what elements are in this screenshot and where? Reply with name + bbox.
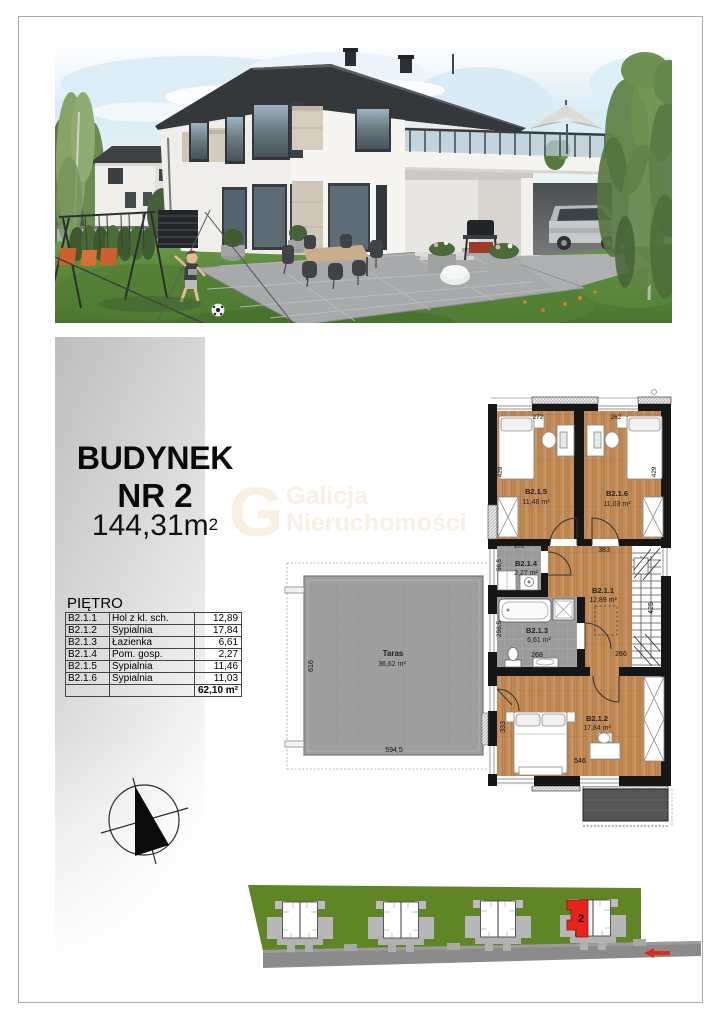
- svg-text:B2.1.1: B2.1.1: [592, 586, 614, 595]
- svg-text:11,46 m²: 11,46 m²: [522, 499, 550, 506]
- svg-text:B2.1.6: B2.1.6: [606, 489, 628, 498]
- svg-text:17,84 m²: 17,84 m²: [583, 725, 611, 732]
- svg-text:2,27 m²: 2,27 m²: [514, 570, 538, 577]
- svg-text:425: 425: [648, 602, 655, 614]
- svg-text:594,5: 594,5: [385, 747, 403, 754]
- svg-text:333: 333: [500, 721, 507, 733]
- svg-text:262: 262: [611, 414, 622, 421]
- svg-text:268: 268: [531, 652, 543, 659]
- svg-text:B2.1.3: B2.1.3: [526, 626, 548, 635]
- svg-text:429: 429: [651, 466, 658, 477]
- svg-text:6,61 m²: 6,61 m²: [527, 637, 551, 644]
- svg-text:256,5: 256,5: [496, 620, 503, 637]
- svg-text:12,89 m²: 12,89 m²: [589, 597, 617, 604]
- svg-text:B2.1.4: B2.1.4: [515, 559, 538, 568]
- svg-text:272: 272: [533, 414, 544, 421]
- svg-text:B2.1.5: B2.1.5: [525, 487, 547, 496]
- svg-text:36,62 m²: 36,62 m²: [378, 661, 406, 668]
- svg-text:383: 383: [598, 547, 610, 554]
- svg-text:11,03 m²: 11,03 m²: [603, 501, 631, 508]
- svg-text:56,5: 56,5: [497, 559, 503, 571]
- svg-text:Taras: Taras: [383, 649, 404, 658]
- svg-text:616: 616: [308, 660, 315, 672]
- svg-text:B2.1.2: B2.1.2: [586, 714, 608, 723]
- svg-text:2: 2: [578, 913, 584, 925]
- svg-text:266: 266: [615, 651, 627, 658]
- svg-text:429: 429: [497, 466, 504, 477]
- svg-text:546: 546: [574, 758, 586, 765]
